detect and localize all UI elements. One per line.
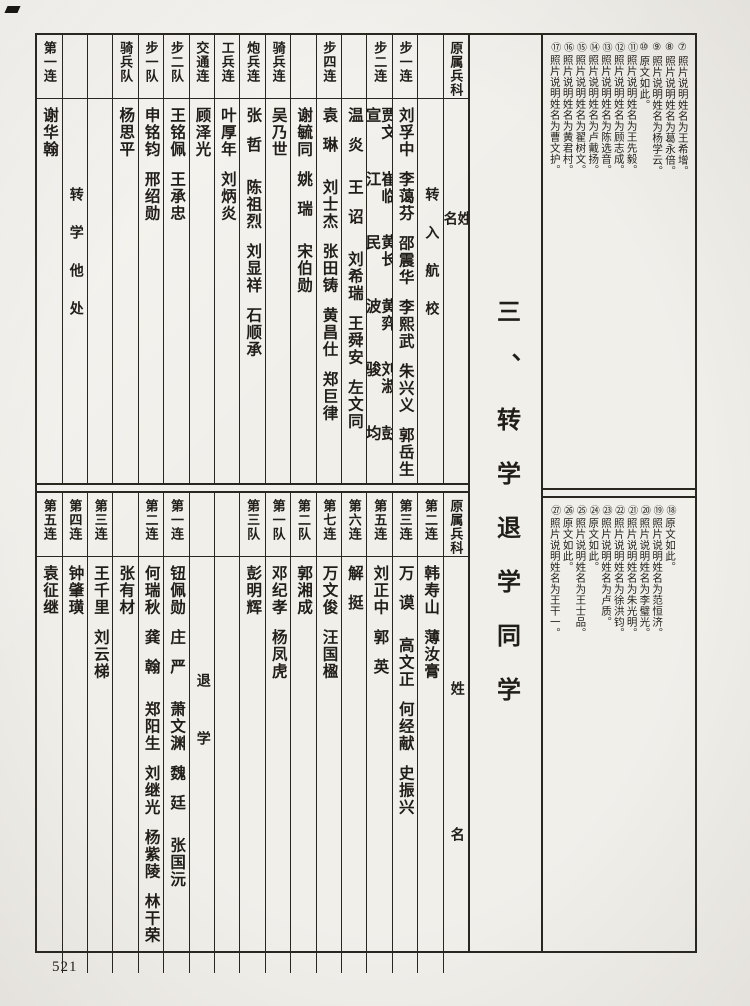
footnote-text: 照片说明姓名为王先毅。 [626, 55, 637, 176]
student-name: 刘士杰 [321, 179, 337, 230]
footnote-marker: ⑩ [638, 42, 649, 54]
table-column: 步二连贾文宣崔临江黄长民黄弈波刘淑骏彭均 [367, 35, 392, 483]
names-cell: 万文俊汪国楹 [317, 557, 341, 973]
unit-label: 第一连 [170, 499, 183, 556]
student-name: 王承忠 [169, 171, 185, 222]
table-column: 第三连万谟高文正何经献史振兴 [393, 493, 418, 973]
unit-header-cell [342, 35, 366, 99]
unit-label: 步二连 [373, 41, 386, 98]
table-column: 第一队邓纪孝杨凤虎 [266, 493, 291, 973]
footnote-item: ⑪照片说明姓名为王先毅。 [624, 42, 637, 484]
table-column: 骑兵队杨思平 [113, 35, 138, 483]
unit-label: 第一队 [271, 499, 284, 556]
table-column: 步四连袁琳刘士杰张田铸黄昌仕郑巨律 [317, 35, 342, 483]
footnote-marker: ⑬ [600, 42, 611, 53]
table-column: 第五连袁征继 [37, 493, 62, 973]
names-cell: 吴乃世 [266, 99, 290, 483]
footnote-marker: ⑯ [562, 42, 573, 53]
student-name: 谢华翰 [42, 107, 58, 158]
footnote-item: ⑧照片说明姓名为葛永倍。 [662, 42, 675, 484]
student-name: 王铭佩 [169, 107, 185, 158]
page-number: 521 [52, 959, 78, 976]
transfer-table-grid: 原属兵科姓名转入航校步一连刘孚中李蔼芬邵震华李熙武朱兴义郭岳生步二连贾文宣崔临江… [37, 35, 468, 483]
footnote-item: ㉓照片说明姓名为卢质。 [598, 505, 611, 947]
student-name: 刘希瑞 [346, 251, 362, 302]
student-name: 黄昌仕 [321, 307, 337, 358]
names-cell: 何瑞秋龚翰郑阳生刘继光杨紫陵林干荣 [139, 557, 163, 973]
student-name: 谢毓同 [296, 107, 312, 158]
table-column: 第二连韩寿山薄汝膏 [418, 493, 443, 973]
table-column: 炮兵连张哲陈祖烈刘显祥石顺承 [240, 35, 265, 483]
unit-header-cell [190, 493, 214, 557]
student-name: 萧文渊 [169, 701, 185, 752]
unit-header-cell: 炮兵连 [240, 35, 264, 99]
names-cell: 退学 [190, 557, 214, 973]
unit-label: 原属兵科 [449, 41, 462, 98]
unit-label: 交通连 [195, 41, 208, 98]
footnote-item: ㉒照片说明姓名为徐洪钧。 [611, 505, 624, 947]
unit-header-cell [418, 35, 442, 99]
unit-header-cell: 原属兵科 [444, 493, 468, 557]
student-name: 郭湘成 [296, 565, 312, 616]
names-cell: 袁琳刘士杰张田铸黄昌仕郑巨律 [317, 99, 341, 483]
unit-label: 炮兵连 [246, 41, 259, 98]
student-name: 顾泽光 [194, 107, 210, 158]
footnote-item: ⑨照片说明姓名为杨学云。 [649, 42, 662, 484]
footnote-text: 照片说明姓名为徐洪钧。 [613, 518, 624, 639]
footnote-marker: ⑭ [587, 42, 598, 53]
student-name: 石顺承 [245, 307, 261, 358]
student-name: 杨凤虎 [270, 629, 286, 680]
footnote-text: 照片说明姓名为王干一。 [549, 518, 560, 639]
footnotes-top-box: ⑦照片说明姓名为王希增。⑧照片说明姓名为葛永倍。⑨照片说明姓名为杨学云。⑩原文如… [543, 35, 695, 490]
names-cell: 顾泽光 [190, 99, 214, 483]
names-cell: 叶厚年刘炳炎 [215, 99, 239, 483]
student-name: 李蔼芬 [397, 171, 413, 222]
student-name: 王舜安 [346, 315, 362, 366]
footnote-text: 照片说明姓名为翟树文。 [574, 55, 585, 176]
names-cell: 姓名 [444, 99, 468, 483]
student-name: 林干荣 [143, 893, 159, 944]
footnote-item: ⑩原文如此。 [637, 42, 650, 484]
transfer-table: 原属兵科姓名转入航校步一连刘孚中李蔼芬邵震华李熙武朱兴义郭岳生步二连贾文宣崔临江… [37, 35, 468, 485]
names-cell: 申铭钧邢绍勋 [139, 99, 163, 483]
unit-label: 原属兵科 [449, 499, 462, 556]
unit-header-cell: 交通连 [190, 35, 214, 99]
names-cell: 张哲陈祖烈刘显祥石顺承 [240, 99, 264, 483]
tables-area: 原属兵科姓名转入航校步一连刘孚中李蔼芬邵震华李熙武朱兴义郭岳生步二连贾文宣崔临江… [37, 35, 468, 951]
footnote-text: 原文如此。 [638, 56, 649, 111]
unit-header-cell: 骑兵队 [113, 35, 137, 99]
footnote-item: ㉑照片说明姓名为朱光明。 [624, 505, 637, 947]
names-cell: 解挺 [342, 557, 366, 973]
footnote-item: ⑳照片说明姓名为李璧光。 [637, 505, 650, 947]
student-name: 张哲 [245, 107, 261, 166]
unit-label: 第二队 [297, 499, 310, 556]
footnote-item: ⑬照片说明姓名为陈选音。 [598, 42, 611, 484]
unit-label: 步二队 [170, 41, 183, 98]
unit-header-cell: 步一队 [139, 35, 163, 99]
names-cell: 韩寿山薄汝膏 [418, 557, 442, 973]
footnote-item: ㉖原文如此。 [560, 505, 573, 947]
student-name: 钮佩勋 [169, 565, 185, 616]
annotation-label: 退学 [195, 673, 209, 789]
names-cell [88, 99, 112, 483]
unit-label: 第三连 [93, 499, 106, 556]
footnote-marker: ㉓ [600, 505, 611, 516]
table-column: 第三连王千里刘云梯 [88, 493, 113, 973]
footnote-marker: ⑦ [677, 42, 688, 54]
names-cell: 谢华翰 [37, 99, 61, 483]
unit-label: 步四连 [322, 41, 335, 98]
unit-header-cell [113, 493, 137, 557]
student-name: 龚翰 [143, 629, 159, 688]
table-column: 步一连刘孚中李蔼芬邵震华李熙武朱兴义郭岳生 [393, 35, 418, 483]
axis-name-label: 姓名 [444, 211, 468, 483]
student-name: 彭明辉 [245, 565, 261, 616]
table-column: 谢毓同姚瑞宋伯勋 [291, 35, 316, 483]
unit-label: 第七连 [322, 499, 335, 556]
table-column: 第一连谢华翰 [37, 35, 62, 483]
footnote-text: 原文如此。 [587, 518, 598, 573]
footnote-item: ⑮照片说明姓名为翟树文。 [573, 42, 586, 484]
student-name: 崔临江 [367, 171, 391, 222]
footnote-item: ⑰照片说明姓名为曹文护。 [547, 42, 560, 484]
student-name: 刘显祥 [245, 243, 261, 294]
table-column: 第五连刘正中郭英 [367, 493, 392, 973]
table-column: 第二队郭湘成 [291, 493, 316, 973]
footnote-text: 照片说明姓名为卢质。 [600, 518, 611, 628]
withdrawal-table-grid: 原属兵科姓名第二连韩寿山薄汝膏第三连万谟高文正何经献史振兴第五连刘正中郭英第六连… [37, 493, 468, 973]
table-column [215, 493, 240, 973]
unit-header-cell [88, 35, 112, 99]
student-name: 郑阳生 [143, 701, 159, 752]
unit-header-cell [291, 35, 315, 99]
student-name: 邓纪孝 [270, 565, 286, 616]
names-cell: 钮佩勋庄严萧文渊魏廷张国沅 [164, 557, 188, 973]
unit-label: 第五连 [373, 499, 386, 556]
student-name: 高文正 [397, 637, 413, 688]
footnote-text: 照片说明姓名为黄君村。 [562, 55, 573, 176]
names-cell: 刘正中郭英 [367, 557, 391, 973]
student-name: 袁琳 [321, 107, 337, 166]
footnote-item: ⑦照片说明姓名为王希增。 [675, 42, 688, 484]
table-column: 原属兵科姓名 [444, 35, 468, 483]
student-name: 汪国楹 [321, 629, 337, 680]
student-name: 韩寿山 [423, 565, 439, 616]
student-name: 杨思平 [118, 107, 134, 158]
footnote-text: 原文如此。 [562, 518, 573, 573]
footnote-marker: ⑨ [651, 42, 662, 54]
section-title: 三、转学退学同学 [494, 299, 518, 951]
unit-label: 骑兵连 [271, 41, 284, 98]
table-column: 第一连钮佩勋庄严萧文渊魏廷张国沅 [164, 493, 189, 973]
footnote-text: 照片说明姓名为范恒济。 [651, 518, 662, 639]
table-column: 第四连钟肇璜 [63, 493, 88, 973]
table-column: 步一队申铭钧邢绍勋 [139, 35, 164, 483]
student-name: 彭均 [367, 425, 391, 483]
footnote-marker: ㉒ [613, 505, 624, 516]
names-cell: 温炎王诏刘希瑞王舜安左文同 [342, 99, 366, 483]
footnote-marker: ⑱ [664, 505, 675, 516]
footnote-text: 照片说明姓名为杨学云。 [651, 56, 662, 177]
unit-label: 第三连 [398, 499, 411, 556]
student-name: 宋伯勋 [296, 243, 312, 294]
scan-corner-mark [4, 6, 20, 13]
withdrawal-table: 原属兵科姓名第二连韩寿山薄汝膏第三连万谟高文正何经献史振兴第五连刘正中郭英第六连… [37, 491, 468, 973]
student-name: 庄严 [169, 629, 185, 688]
axis-name-label: 姓名 [449, 681, 463, 973]
footnote-text: 原文如此。 [664, 518, 675, 573]
names-cell: 王千里刘云梯 [88, 557, 112, 973]
names-cell: 郭湘成 [291, 557, 315, 973]
footnote-marker: ㉗ [549, 505, 560, 516]
annotation-label: 转入航校 [423, 187, 437, 339]
student-name: 刘炳炎 [219, 171, 235, 222]
student-name: 刘正中 [372, 565, 388, 616]
unit-header-cell: 步二队 [164, 35, 188, 99]
names-cell: 彭明辉 [240, 557, 264, 973]
footnote-item: ㉗照片说明姓名为王干一。 [547, 505, 560, 947]
footnote-item: ⑫照片说明姓名为顾志成。 [611, 42, 624, 484]
footnote-marker: ㉖ [562, 505, 573, 516]
student-name: 左文同 [346, 379, 362, 430]
student-name: 朱兴义 [397, 363, 413, 414]
unit-label: 第一连 [43, 41, 56, 98]
footnotes-bottom-box: ⑱原文如此。⑲照片说明姓名为范恒济。⑳照片说明姓名为李璧光。㉑照片说明姓名为朱光… [543, 496, 695, 951]
footnotes-bottom-list: ⑱原文如此。⑲照片说明姓名为范恒济。⑳照片说明姓名为李璧光。㉑照片说明姓名为朱光… [543, 498, 686, 951]
student-name: 刘孚中 [397, 107, 413, 158]
student-name: 万文俊 [321, 565, 337, 616]
student-name: 袁征继 [42, 565, 58, 616]
student-name: 温炎 [346, 107, 362, 166]
unit-header-cell: 步四连 [317, 35, 341, 99]
footnote-text: 照片说明姓名为卢戴扬。 [587, 55, 598, 176]
student-name: 王诏 [346, 179, 362, 238]
student-name: 贾文宣 [367, 107, 391, 158]
table-column: 张有材 [113, 493, 138, 973]
unit-header-cell [63, 35, 87, 99]
names-cell: 转学他处 [63, 99, 87, 483]
student-name: 邢绍勋 [143, 171, 159, 222]
unit-header-cell: 步二连 [367, 35, 391, 99]
unit-label: 步一队 [144, 41, 157, 98]
unit-label: 第六连 [348, 499, 361, 556]
footnote-text: 照片说明姓名为王士品。 [574, 518, 585, 639]
unit-header-cell: 第四连 [63, 493, 87, 557]
footnote-marker: ⑮ [574, 42, 585, 53]
footnote-text: 照片说明姓名为王希增。 [677, 56, 688, 177]
student-name: 姚瑞 [296, 171, 312, 230]
footnote-text: 照片说明姓名为葛永倍。 [664, 56, 675, 177]
student-name: 张田铸 [321, 243, 337, 294]
student-name: 刘云梯 [92, 629, 108, 680]
names-cell: 钟肇璜 [63, 557, 87, 973]
unit-header-cell: 步一连 [393, 35, 417, 99]
student-name: 杨紫陵 [143, 829, 159, 880]
student-name: 解挺 [346, 565, 362, 624]
names-cell [215, 557, 239, 973]
scanned-book-page: 原属兵科姓名转入航校步一连刘孚中李蔼芬邵震华李熙武朱兴义郭岳生步二连贾文宣崔临江… [0, 0, 750, 1006]
unit-label: 第五连 [43, 499, 56, 556]
footnote-marker: ㉕ [574, 505, 585, 516]
footnote-text: 照片说明姓名为李璧光。 [638, 518, 649, 639]
table-column: 转学他处 [63, 35, 88, 483]
unit-header-cell: 第三连 [393, 493, 417, 557]
student-name: 郭英 [372, 629, 388, 688]
annotation-label: 转学他处 [68, 187, 82, 339]
unit-header-cell: 第一连 [37, 35, 61, 99]
unit-header-cell: 第一队 [266, 493, 290, 557]
unit-header-cell [215, 493, 239, 557]
names-cell: 贾文宣崔临江黄长民黄弈波刘淑骏彭均 [367, 99, 391, 483]
table-column: 第七连万文俊汪国楹 [317, 493, 342, 973]
student-name: 叶厚年 [219, 107, 235, 158]
names-cell: 张有材 [113, 557, 137, 973]
footnote-text: 照片说明姓名为朱光明。 [626, 518, 637, 639]
footnote-marker: ⑫ [613, 42, 624, 53]
student-name: 张国沅 [169, 837, 185, 888]
footnote-marker: ⑳ [638, 505, 649, 516]
footnote-item: ⑲照片说明姓名为范恒济。 [649, 505, 662, 947]
student-name: 邵震华 [397, 235, 413, 286]
unit-label: 第四连 [68, 499, 81, 556]
names-cell: 姓名 [444, 557, 468, 973]
names-cell: 刘孚中李蔼芬邵震华李熙武朱兴义郭岳生 [393, 99, 417, 483]
unit-header-cell: 第六连 [342, 493, 366, 557]
footnotes-top-list: ⑦照片说明姓名为王希增。⑧照片说明姓名为葛永倍。⑨照片说明姓名为杨学云。⑩原文如… [543, 35, 695, 488]
footnote-item: ⑭照片说明姓名为卢戴扬。 [585, 42, 598, 484]
unit-header-cell: 第三队 [240, 493, 264, 557]
unit-label: 第三队 [246, 499, 259, 556]
table-column: 第二连何瑞秋龚翰郑阳生刘继光杨紫陵林干荣 [139, 493, 164, 973]
student-name: 黄弈波 [367, 298, 391, 349]
names-cell: 转入航校 [418, 99, 442, 483]
names-cell: 谢毓同姚瑞宋伯勋 [291, 99, 315, 483]
footnote-text: 照片说明姓名为顾志成。 [613, 55, 624, 176]
names-cell: 杨思平 [113, 99, 137, 483]
student-name: 陈祖烈 [245, 179, 261, 230]
student-name: 万谟 [397, 565, 413, 624]
unit-header-cell: 第五连 [367, 493, 391, 557]
unit-header-cell: 第五连 [37, 493, 61, 557]
table-column [88, 35, 113, 483]
names-cell: 万谟高文正何经献史振兴 [393, 557, 417, 973]
footnote-marker: ⑧ [664, 42, 675, 54]
footnote-marker: ㉑ [626, 505, 637, 516]
unit-header-cell: 第二队 [291, 493, 315, 557]
names-cell: 袁征继 [37, 557, 61, 973]
student-name: 史振兴 [397, 765, 413, 816]
footnotes-area: ⑦照片说明姓名为王希增。⑧照片说明姓名为葛永倍。⑨照片说明姓名为杨学云。⑩原文如… [543, 35, 695, 951]
unit-header-cell: 骑兵连 [266, 35, 290, 99]
unit-header-cell: 第二连 [139, 493, 163, 557]
unit-label: 第二连 [144, 499, 157, 556]
table-column: 第三队彭明辉 [240, 493, 265, 973]
unit-header-cell: 第三连 [88, 493, 112, 557]
footnote-marker: ㉔ [587, 505, 598, 516]
footnote-marker: ⑲ [651, 505, 662, 516]
unit-header-cell: 工兵连 [215, 35, 239, 99]
unit-label: 骑兵队 [119, 41, 132, 98]
student-name: 黄长民 [367, 234, 391, 285]
footnote-item: ㉔原文如此。 [585, 505, 598, 947]
student-name: 王千里 [92, 565, 108, 616]
student-name: 钟肇璜 [67, 565, 83, 616]
names-cell: 邓纪孝杨凤虎 [266, 557, 290, 973]
table-column: 工兵连叶厚年刘炳炎 [215, 35, 240, 483]
table-column: 原属兵科姓名 [444, 493, 468, 973]
footnote-marker: ⑪ [626, 42, 637, 53]
student-name: 魏廷 [169, 765, 185, 824]
student-name: 何瑞秋 [143, 565, 159, 616]
unit-label: 步一连 [398, 41, 411, 98]
page-content-frame: 原属兵科姓名转入航校步一连刘孚中李蔼芬邵震华李熙武朱兴义郭岳生步二连贾文宣崔临江… [35, 33, 697, 953]
student-name: 刘继光 [143, 765, 159, 816]
footnote-item: ⑯照片说明姓名为黄君村。 [560, 42, 573, 484]
footnote-marker: ⑰ [549, 42, 560, 53]
unit-header-cell: 第七连 [317, 493, 341, 557]
student-name: 何经献 [397, 701, 413, 752]
unit-header-cell: 第一连 [164, 493, 188, 557]
student-name: 吴乃世 [270, 107, 286, 158]
table-column: 步二队王铭佩王承忠 [164, 35, 189, 483]
footnote-text: 照片说明姓名为陈选音。 [600, 55, 611, 176]
table-column: 骑兵连吴乃世 [266, 35, 291, 483]
student-name: 李熙武 [397, 299, 413, 350]
student-name: 郭岳生 [397, 427, 413, 478]
table-column: 温炎王诏刘希瑞王舜安左文同 [342, 35, 367, 483]
unit-header-cell: 第二连 [418, 493, 442, 557]
names-cell: 王铭佩王承忠 [164, 99, 188, 483]
student-name: 刘淑骏 [367, 361, 391, 412]
student-name: 张有材 [118, 565, 134, 616]
footnote-text: 照片说明姓名为曹文护。 [549, 55, 560, 176]
student-name: 申铭钧 [143, 107, 159, 158]
unit-header-cell: 原属兵科 [444, 35, 468, 99]
table-column: 交通连顾泽光 [190, 35, 215, 483]
section-title-column: 三、转学退学同学 [468, 35, 543, 951]
student-name: 薄汝膏 [423, 629, 439, 680]
unit-label: 第二连 [424, 499, 437, 556]
table-column: 转入航校 [418, 35, 443, 483]
footnote-item: ⑱原文如此。 [662, 505, 675, 947]
footnote-item: ㉕照片说明姓名为王士品。 [573, 505, 586, 947]
table-column: 退学 [190, 493, 215, 973]
unit-label: 工兵连 [221, 41, 234, 98]
student-name: 郑巨律 [321, 371, 337, 422]
table-column: 第六连解挺 [342, 493, 367, 973]
